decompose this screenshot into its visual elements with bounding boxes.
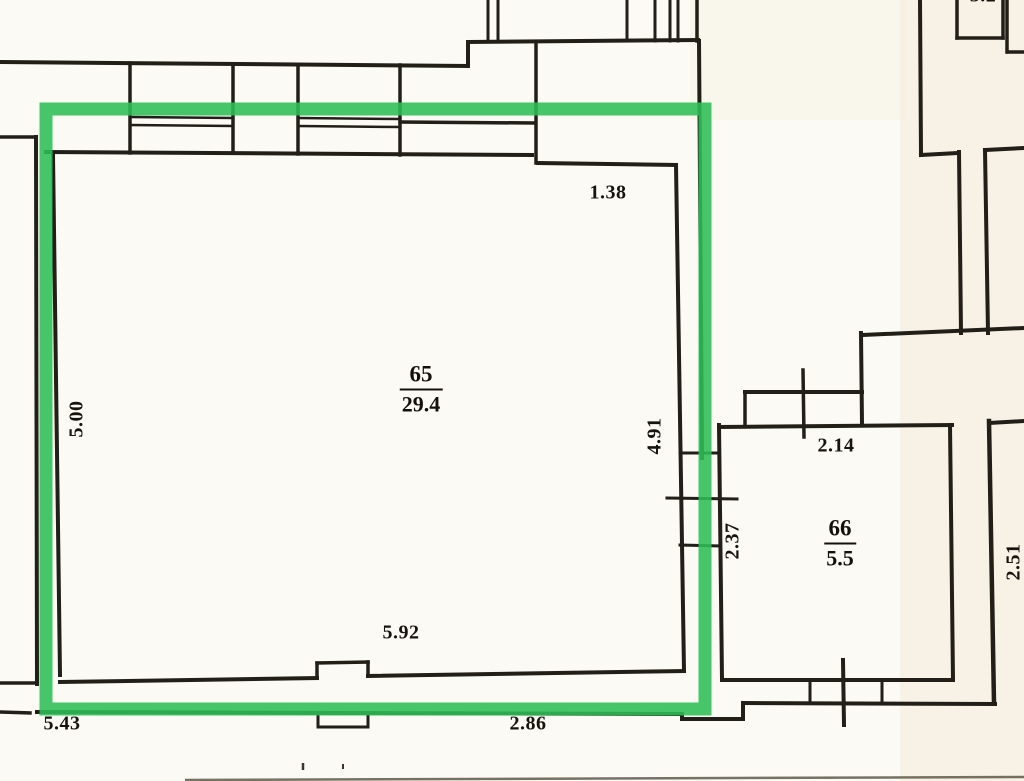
room-65-label: 65 29.4 xyxy=(400,363,443,416)
scan-edge-artifacts xyxy=(185,763,1024,780)
room-66-area: 5.5 xyxy=(824,543,856,570)
floor-plan-drawing xyxy=(0,0,1024,781)
room-65-number: 65 xyxy=(408,363,435,386)
dimension-label-bottom-wall: 5.92 xyxy=(383,622,420,645)
paper-tint-top xyxy=(690,0,905,120)
dimension-label-duct: 2.37 xyxy=(722,523,745,560)
dimension-label-left-wall: 5.00 xyxy=(66,401,89,438)
floor-plan-scan: 1.38 5.00 4.91 2.37 2.14 2.51 5.92 5.43 … xyxy=(0,0,1024,781)
paper-tint xyxy=(900,0,1024,781)
dimension-label-top-edge-partial: 3.2 xyxy=(970,0,997,8)
dimension-label-top-right: 1.38 xyxy=(590,182,627,205)
dimension-label-bottom-left: 5.43 xyxy=(44,713,81,736)
room-66-number: 66 xyxy=(827,517,854,540)
room-66-label: 66 5.5 xyxy=(824,517,856,570)
dimension-label-far-right-wall: 2.51 xyxy=(1003,544,1024,581)
room-65-area: 29.4 xyxy=(400,389,443,416)
dimension-label-right-wall: 4.91 xyxy=(644,418,667,455)
dimension-label-room66-top: 2.14 xyxy=(818,435,855,458)
dimension-label-bottom-right: 2.86 xyxy=(510,713,547,736)
